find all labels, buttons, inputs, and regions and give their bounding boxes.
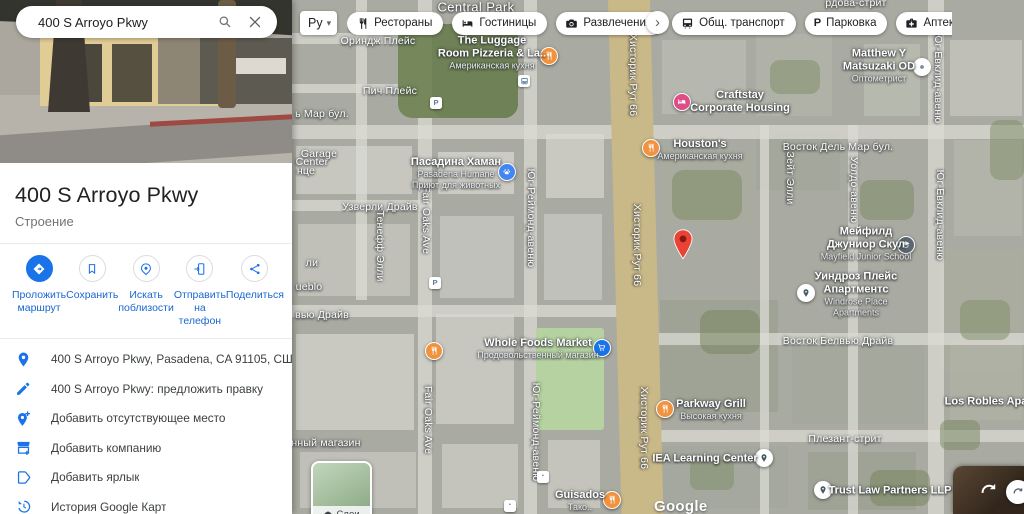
stone-pillar [158, 32, 202, 104]
info-item-label: История Google Карт [51, 500, 166, 514]
save-button[interactable]: Сохранить [66, 255, 118, 328]
search-icon[interactable] [217, 14, 233, 30]
street-label: вью Драйв [295, 309, 349, 321]
layers-control[interactable]: Слои [311, 461, 372, 514]
street-label-vertical: Юг-Евклид-авеню [934, 170, 946, 261]
info-list-item[interactable]: История Google Карт [0, 492, 292, 514]
shop-sign [236, 58, 286, 74]
info-item-label: Добавить компанию [51, 441, 161, 455]
layers-label: Слои [336, 509, 359, 514]
poi-label-pasadena-humane[interactable]: Пасадина ХаманPasadena HumaneПриют для ж… [411, 156, 501, 190]
street-label-vertical: Зейт Элли [784, 152, 796, 205]
action-label: Проложить маршрут [12, 289, 66, 315]
poi-label-guisados[interactable]: GuisadosТако.. [555, 489, 605, 513]
chip-label: Гостиницы [479, 17, 536, 29]
directions-button[interactable]: Проложить маршрут [12, 255, 66, 328]
directions-icon [26, 255, 53, 282]
street-label: нце [297, 165, 315, 177]
language-button-label: Ру [308, 16, 323, 30]
street-label: ь Мар бул. [295, 108, 349, 120]
street-label: ueblo [296, 281, 323, 293]
street-label-vertical: Fair Oaks Ave [422, 386, 434, 454]
language-button[interactable]: Ру ▾ [300, 11, 337, 35]
street-view-photo[interactable] [0, 0, 292, 163]
transit-mini-icon[interactable] [518, 75, 530, 87]
poi-pin-small-icon[interactable] [755, 449, 773, 467]
layers-icon [323, 510, 333, 514]
chevron-down-icon: ▾ [327, 18, 332, 29]
place-header: 400 S Arroyo Pkwy Строение [0, 163, 292, 243]
action-label: Отправить на телефон [174, 289, 226, 328]
parking-icon: P [814, 17, 821, 29]
compass-button[interactable] [1006, 480, 1024, 504]
filter-chip-рестораны[interactable]: Рестораны [347, 12, 443, 35]
poi-label-houstons[interactable]: Houston'sАмериканская кухня [657, 138, 742, 162]
parking-mini-icon[interactable]: P [429, 277, 441, 289]
street-label-vertical: Хисторик Рут 66 [638, 387, 650, 470]
filter-chip-парковка[interactable]: PПарковка [805, 12, 888, 35]
poi-pin-small-icon[interactable] [797, 284, 815, 302]
info-list-item[interactable]: 400 S Arroyo Pkwy: предложить правку [0, 374, 292, 404]
poi-label-los-robles-apartments[interactable]: Los Robles Apart [945, 396, 1024, 409]
street-label: Плезант-стрит [808, 433, 881, 445]
chip-label: Общ. транспорт [699, 17, 785, 29]
info-item-label: 400 S Arroyo Pkwy: предложить правку [51, 382, 263, 396]
chip-label: Рестораны [374, 17, 432, 29]
street-label-vertical: Уолдо-авеню [848, 157, 860, 223]
place-category: Строение [15, 214, 276, 229]
info-item-label: 400 S Arroyo Pkwy, Pasadena, CA 91105, С… [51, 352, 292, 366]
poi-restaurant-icon[interactable] [603, 491, 621, 509]
street-label: ли [306, 257, 318, 269]
bookmark-icon [79, 255, 106, 282]
history-icon [15, 498, 32, 514]
storefront-window [112, 44, 152, 102]
street-label-vertical: Хисторик Рут 66 [631, 204, 643, 287]
info-item-label: Добавить отсутствующее место [51, 411, 225, 425]
camera-icon [565, 17, 578, 30]
poi-hotel-icon[interactable] [673, 93, 691, 111]
pharmacy-icon [905, 17, 918, 30]
close-icon[interactable] [247, 14, 263, 30]
info-item-label: Добавить ярлык [51, 470, 139, 484]
poi-dot-icon[interactable] [913, 58, 931, 76]
send-to-phone-icon [186, 255, 213, 282]
street-label: Пич Плейс [363, 85, 417, 97]
street-label-vertical: Юг-Евклид-авеню [932, 33, 944, 124]
street-label: нный магазин [291, 437, 360, 449]
storefront-icon [15, 439, 32, 456]
generic-mini-icon[interactable]: ▪ [504, 500, 516, 512]
info-list-item[interactable]: Добавить отсутствующее место [0, 403, 292, 433]
action-label: Поделиться [226, 289, 284, 302]
pencil-icon [15, 380, 32, 397]
poi-label-parkway-grill[interactable]: Parkway GrillВысокая кухня [676, 398, 746, 422]
poi-restaurant-icon[interactable] [425, 342, 443, 360]
poi-label-craftstay-corporate-housing[interactable]: CraftstayCorporate Housing [690, 89, 790, 115]
street-label-vertical: Fair Oaks Ave [420, 186, 432, 254]
filter-chip-общ-транспорт[interactable]: Общ. транспорт [672, 12, 796, 35]
street-label-vertical: Хисторик Рут 66 [627, 34, 639, 117]
action-buttons-row: Проложить маршрутСохранитьИскать поблизо… [0, 244, 292, 338]
add-place-icon [15, 410, 32, 427]
send-to-phone-button[interactable]: Отправить на телефон [174, 255, 226, 328]
destination-pin[interactable] [673, 229, 694, 265]
google-maps-app: Central Parkрдова-стритОриндж ПлейсПич П… [0, 0, 1024, 514]
poi-label-whole-foods-market[interactable]: Whole Foods MarketПродовольственный мага… [477, 337, 599, 361]
nearby-button[interactable]: Искать поблизости [118, 255, 174, 328]
restaurant-icon [356, 17, 369, 30]
street-label-vertical: Юг-Реймонд-авеню [530, 383, 542, 482]
street-label-vertical: Юг-Реймонд-авеню [525, 169, 537, 268]
poi-label-mayfield-junior-school[interactable]: МейфилдДжуниор СкулMayfield Junior Schoo… [821, 226, 912, 263]
curved-arrow-icon [979, 481, 998, 500]
place-title: 400 S Arroyo Pkwy [15, 183, 276, 208]
search-input[interactable] [36, 14, 217, 31]
more-categories-button[interactable]: › [646, 11, 669, 34]
info-list-item[interactable]: Добавить ярлык [0, 462, 292, 492]
filter-chip-гостиницы[interactable]: Гостиницы [452, 12, 547, 35]
info-list-item[interactable]: 400 S Arroyo Pkwy, Pasadena, CA 91105, С… [0, 344, 292, 374]
info-list: 400 S Arroyo Pkwy, Pasadena, CA 91105, С… [0, 339, 292, 514]
action-label: Сохранить [66, 289, 118, 302]
street-label: Восток Дель Мар бул. [783, 141, 894, 153]
transit-icon [681, 17, 694, 30]
place-panel: 400 S Arroyo Pkwy Строение Проложить мар… [0, 0, 292, 514]
poi-restaurant-icon[interactable] [656, 400, 674, 418]
action-label: Искать поблизости [118, 289, 174, 315]
poi-label-matthew-y-matsuzaki-od[interactable]: Matthew YMatsuzaki ODОптометрист [843, 48, 915, 85]
chip-label: Аптеки [923, 17, 952, 29]
hotel-icon [461, 17, 474, 30]
search-box[interactable] [16, 6, 277, 38]
street-label: Восток Белвью Драйв [783, 335, 894, 347]
generic-mini-icon[interactable]: ▪ [537, 471, 549, 483]
chip-label: Парковка [826, 17, 876, 29]
location-pin-icon [15, 351, 32, 368]
poi-label-trust-law-partners-llp[interactable]: Trust Law Partners LLP [829, 485, 952, 498]
filter-chip-аптеки[interactable]: Аптеки [896, 12, 952, 35]
share-icon [241, 255, 268, 282]
google-logo: Google [654, 498, 707, 514]
chip-label: Развлечения [583, 17, 652, 29]
street-label-vertical: Тенефф Элли [374, 210, 386, 281]
parking-mini-icon[interactable]: P [430, 97, 442, 109]
info-list-item[interactable]: Добавить компанию [0, 433, 292, 463]
poi-label-iea-learning-center[interactable]: IEA Learning Center [652, 453, 757, 466]
poi-label-windrose-place-apartments[interactable]: Уиндроз ПлейсАпартментсWindrose PlaceApa… [815, 270, 897, 317]
share-button[interactable]: Поделиться [226, 255, 284, 328]
nearby-icon [133, 255, 160, 282]
tag-icon [15, 469, 32, 486]
